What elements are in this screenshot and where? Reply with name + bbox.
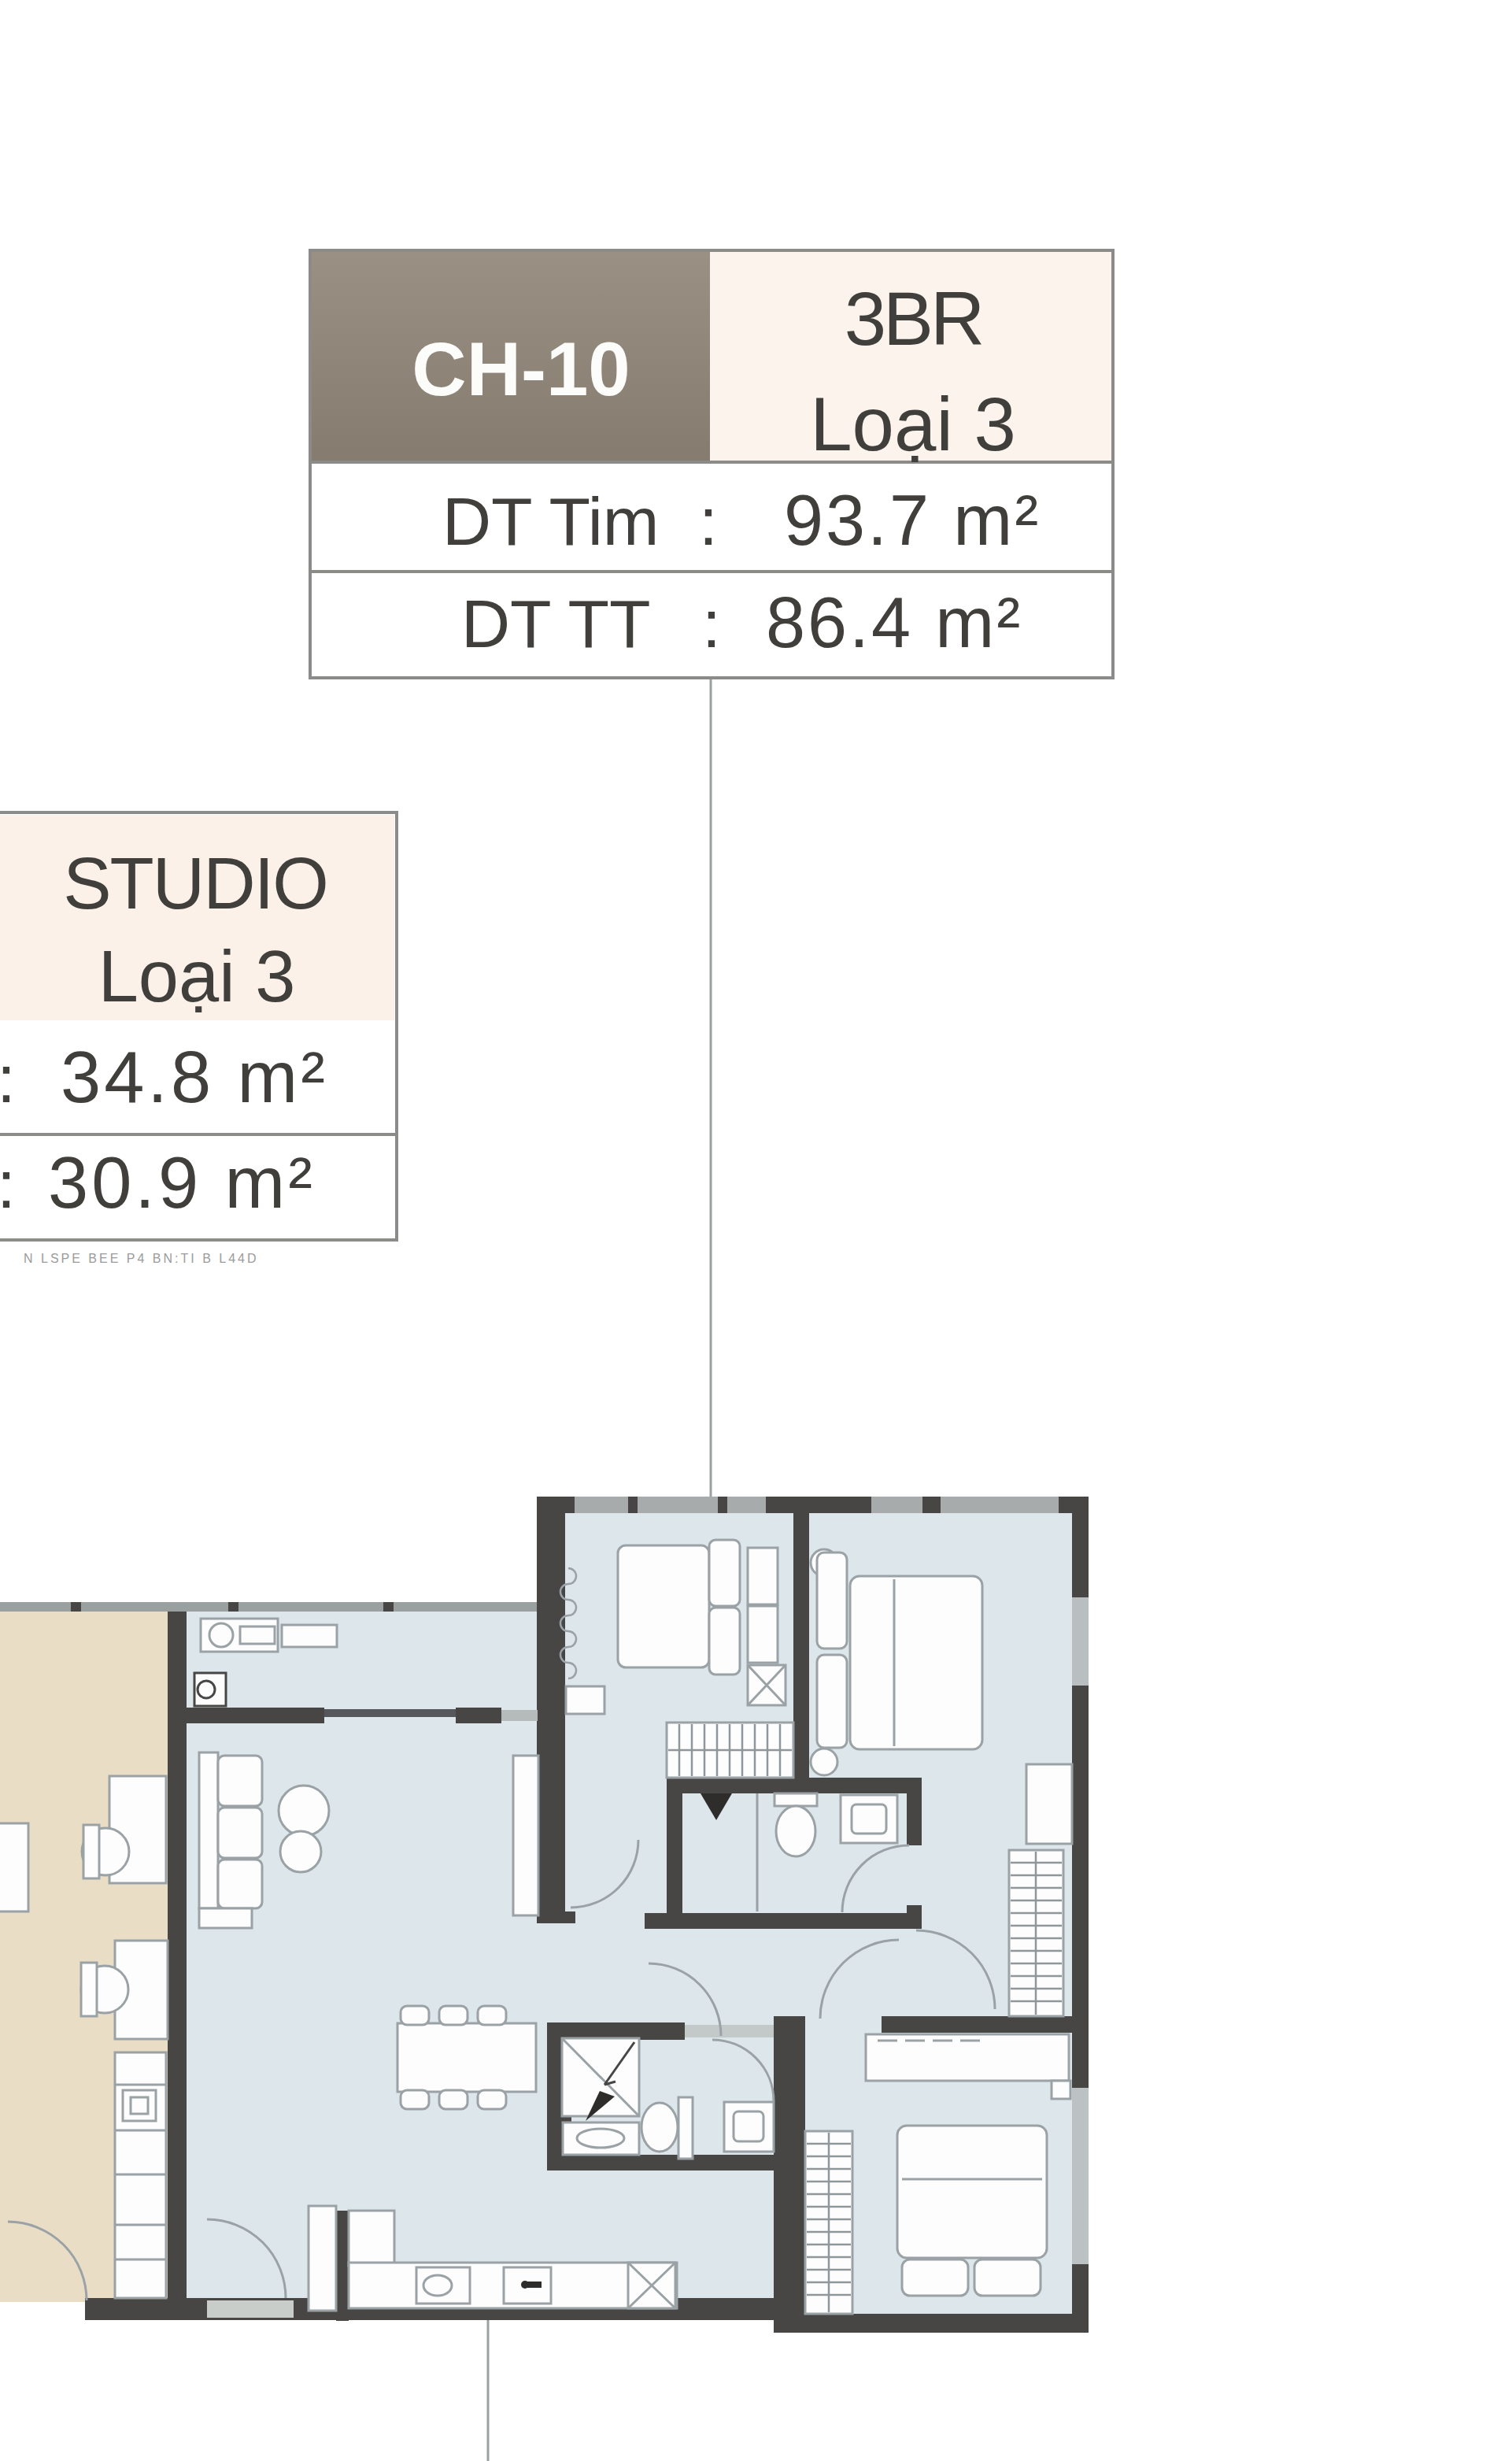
svg-text::: : (0, 1146, 16, 1222)
svg-text:DT Tim: DT Tim (442, 483, 660, 559)
svg-text:86.4 m²: 86.4 m² (766, 583, 1022, 662)
svg-text:34.8 m²: 34.8 m² (61, 1037, 328, 1117)
svg-text:3BR: 3BR (845, 276, 982, 361)
svg-text:Loại 3: Loại 3 (98, 936, 296, 1016)
svg-text:30.9 m²: 30.9 m² (48, 1142, 316, 1223)
svg-text:Loại 3: Loại 3 (810, 382, 1016, 466)
svg-text:N LSPE BEE P4 BN:TI B L44D: N LSPE BEE P4 BN:TI B L44D (24, 1252, 259, 1265)
svg-text:STUDIO: STUDIO (63, 843, 327, 923)
svg-text:DT TT: DT TT (461, 586, 651, 661)
svg-text::: : (702, 586, 721, 661)
svg-text::: : (0, 1041, 16, 1116)
svg-text:CH-10: CH-10 (412, 327, 630, 411)
svg-text::: : (699, 483, 718, 559)
svg-text:93.7 m²: 93.7 m² (784, 481, 1041, 560)
